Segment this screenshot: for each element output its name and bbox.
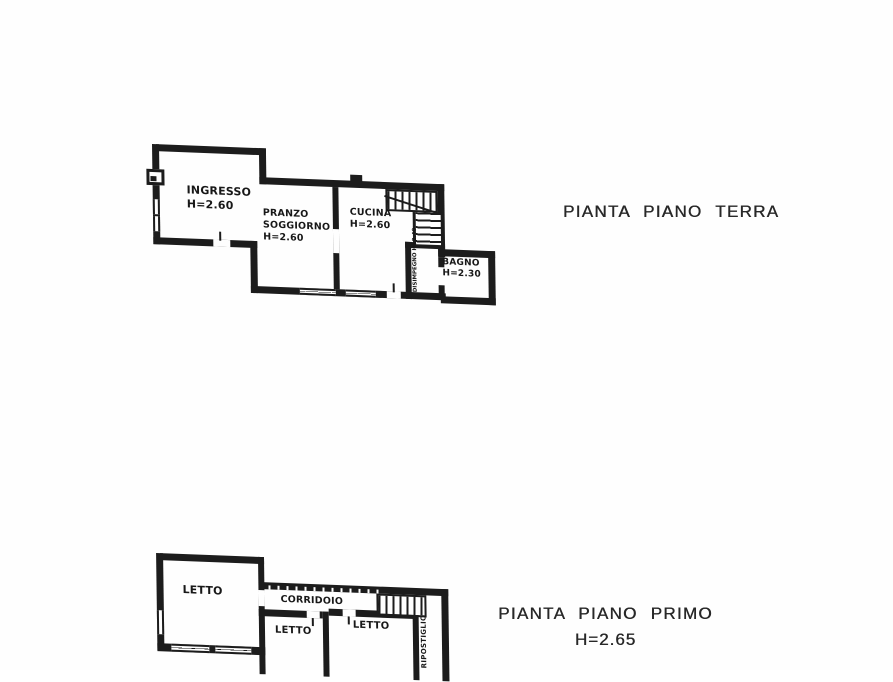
room-label-disimpegno: DISIMPEGNO H=2.40: [412, 246, 420, 292]
first-floor-plan: LETTO CORRIDOIO LETTO LETTO RIPOSTIGLIO: [156, 548, 457, 682]
room-label-ingresso: INGRESSO H=2.60: [187, 183, 252, 213]
room-label-corridoio: CORRIDOIO: [280, 594, 343, 608]
wall: [156, 553, 164, 650]
door-leaf: [393, 283, 395, 292]
room-label-pranzo-soggiorno: PRANZO SOGGIORNO H=2.60: [263, 207, 331, 245]
wall: [156, 144, 266, 155]
first-floor-height: H=2.65: [498, 630, 713, 650]
room-label-bagno: BAGNO H=2.30: [442, 257, 481, 281]
wall: [350, 175, 362, 182]
room-label-letto-2: LETTO: [275, 625, 312, 639]
room-label-ripostiglio: RIPOSTIGLIO: [419, 602, 428, 668]
wall: [405, 242, 412, 299]
window: [153, 199, 160, 214]
ground-floor-title: PIANTA PIANO TERRA: [563, 202, 779, 222]
window: [346, 290, 376, 298]
window-symbol: [146, 169, 164, 186]
room-label-letto-3: LETTO: [353, 620, 390, 634]
door-opening: [213, 239, 230, 247]
first-floor-title: PIANTA PIANO PRIMO H=2.65: [498, 604, 713, 650]
window: [153, 216, 160, 231]
door-opening: [258, 590, 264, 606]
ground-floor-plan: INGRESSO H=2.60 PRANZO SOGGIORNO H=2.60 …: [152, 144, 504, 318]
wall: [323, 611, 330, 676]
wall: [160, 553, 264, 564]
wall: [439, 285, 445, 297]
room-label-letto-1: LETTO: [182, 583, 222, 598]
wall: [441, 296, 496, 305]
floorplan-sheet: INGRESSO H=2.60 PRANZO SOGGIORNO H=2.60 …: [0, 0, 893, 670]
wall: [413, 614, 420, 680]
door-opening: [333, 229, 339, 253]
wall: [441, 589, 449, 681]
door-leaf: [348, 616, 350, 624]
door-leaf: [312, 618, 314, 626]
wall: [153, 237, 257, 248]
window: [157, 610, 164, 634]
window: [171, 644, 209, 653]
window: [300, 288, 336, 296]
room-label-cucina: CUCINA H=2.60: [350, 207, 392, 232]
door-leaf: [219, 232, 221, 241]
window: [215, 645, 251, 654]
